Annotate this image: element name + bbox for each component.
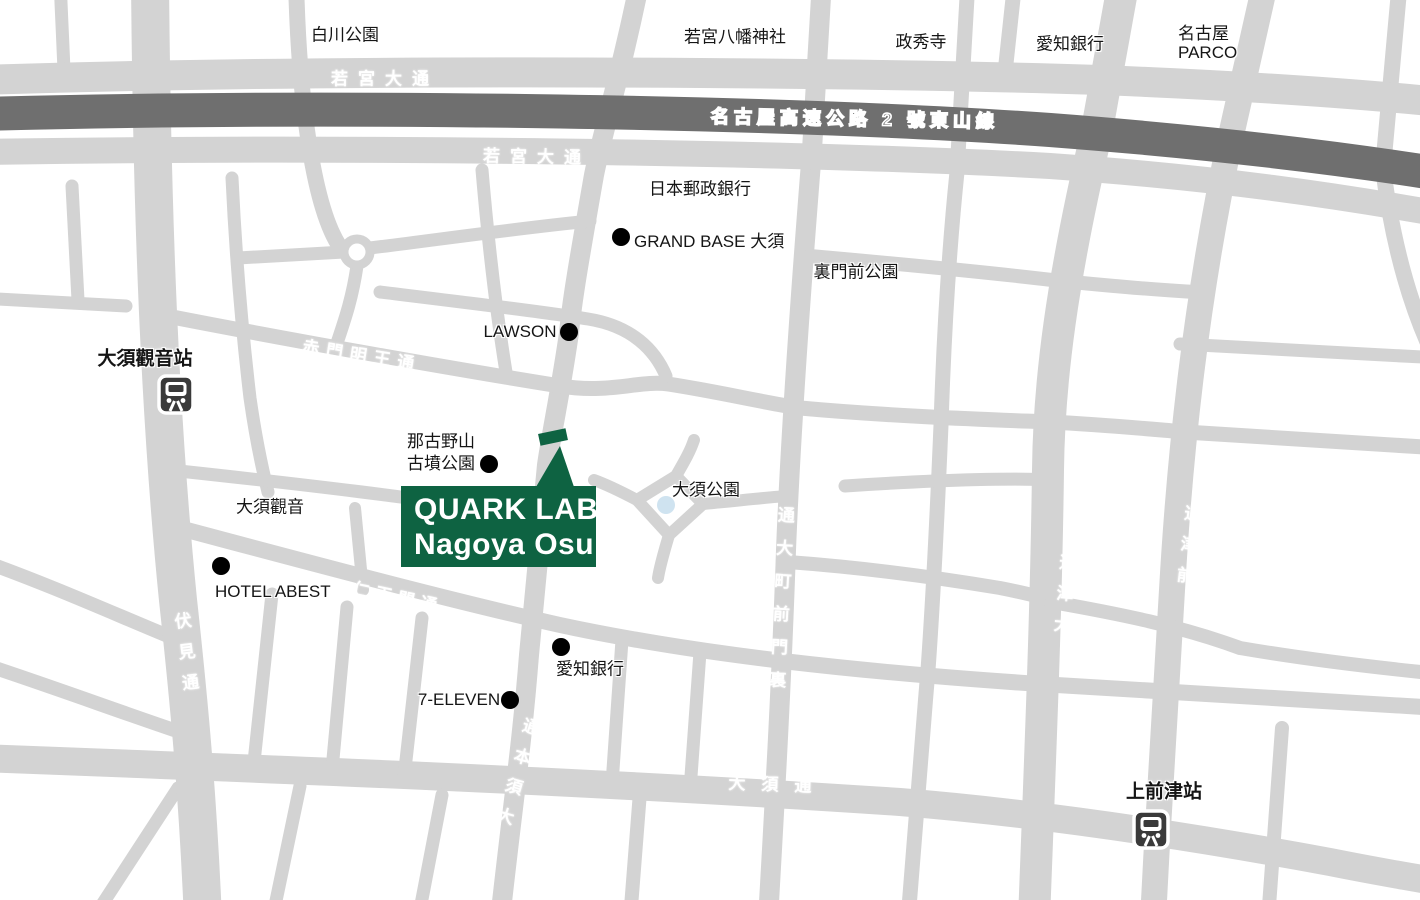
road-label-osu-dori: 大須通 (728, 769, 828, 797)
label-nagonoyama-kofun-park: 那古野山 古墳公園 (407, 431, 475, 475)
poi-dot-aichi-bank-south (552, 638, 570, 656)
location-label-box: QUARK LAB Nagoya Osu (401, 486, 596, 567)
label-japan-post-bank: 日本郵政銀行 (649, 175, 751, 200)
road-network (0, 0, 1420, 900)
label-nagoya-parco: 名古屋 PARCO (1178, 24, 1237, 62)
poi-dot-grand-base (612, 228, 630, 246)
label-nagonoyama-line1: 那古野山 (407, 431, 475, 453)
train-station-icon (154, 372, 198, 418)
poi-dot-kofun-park (480, 455, 498, 473)
label-hotel-abest: HOTEL ABEST (215, 582, 331, 602)
label-osu-kannon-temple: 大須觀音 (236, 493, 304, 518)
label-grand-base: GRAND BASE 大須 (634, 227, 784, 252)
poi-dot-lawson (560, 323, 578, 341)
label-nagoya-parco-line1: 名古屋 (1178, 24, 1237, 43)
label-aichi-bank-north: 愛知銀行 (1036, 30, 1104, 55)
label-uramonzen-park: 裏門前公園 (814, 258, 899, 283)
label-osu-kannon-station: 大須觀音站 (97, 344, 192, 371)
label-osu-park: 大須公園 (672, 476, 740, 501)
access-map: 若宮大通 名古屋高速公路 2 號東山線 若宮大通 赤門明王通 伏見通 仁王門通 … (0, 0, 1420, 900)
label-seven-eleven: 7-ELEVEN (418, 690, 500, 710)
label-shirakawa-park: 白川公園 (311, 21, 379, 46)
poi-dot-hotel-abest (212, 557, 230, 575)
label-lawson: LAWSON (483, 322, 556, 342)
road-label-wakamiya-odori-north: 若宮大通 (331, 65, 439, 90)
label-nagoya-parco-line2: PARCO (1178, 43, 1237, 62)
label-kamimaezu-station: 上前津站 (1126, 777, 1202, 804)
roundabout (344, 239, 370, 265)
location-label-line2: Nagoya Osu (414, 527, 596, 562)
label-aichi-bank-south: 愛知銀行 (556, 655, 624, 680)
label-seishuji: 政秀寺 (896, 28, 947, 53)
label-wakamiya-hachiman: 若宮八幡神社 (684, 23, 786, 48)
road-label-wakamiya-odori-south: 若宮大通 (483, 142, 591, 169)
location-label-line1: QUARK LAB (414, 492, 596, 527)
train-station-icon (1129, 807, 1173, 853)
poi-dot-seven-eleven (501, 691, 519, 709)
label-nagonoyama-line2: 古墳公園 (407, 453, 475, 475)
road-label-expressway: 名古屋高速公路 2 號東山線 (711, 102, 999, 133)
